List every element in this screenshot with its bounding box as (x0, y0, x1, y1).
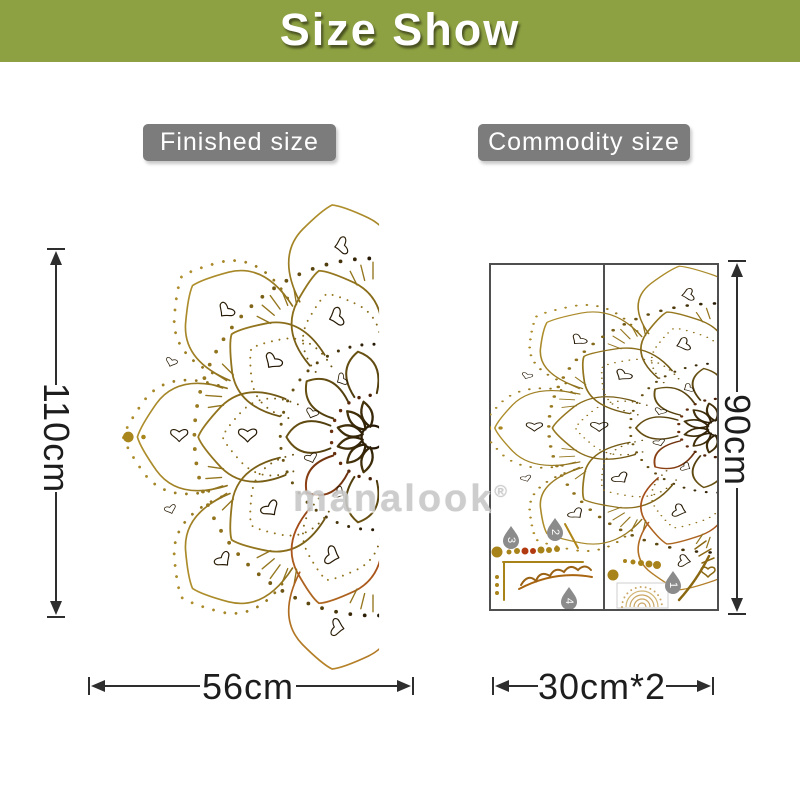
finished-mandala (123, 196, 552, 679)
size-show-page: Size Show Finished size Commodity size (0, 0, 800, 800)
watermark: manalook® (293, 478, 507, 521)
finished-width-label: 56cm (202, 666, 294, 708)
registered-mark: ® (494, 482, 507, 501)
commodity-height-label: 90cm (716, 394, 758, 486)
watermark-text: manalook (293, 478, 494, 520)
page-title: Size Show (0, 0, 800, 62)
finished-size-tag: Finished size (143, 124, 336, 161)
commodity-size-tag: Commodity size (478, 124, 690, 161)
commodity-sheets-frame (489, 263, 719, 611)
size-show-banner: Size Show (0, 0, 800, 62)
sheet-divider (603, 265, 605, 609)
finished-height-label: 110cm (35, 383, 77, 493)
commodity-width-label: 30cm*2 (538, 666, 666, 708)
